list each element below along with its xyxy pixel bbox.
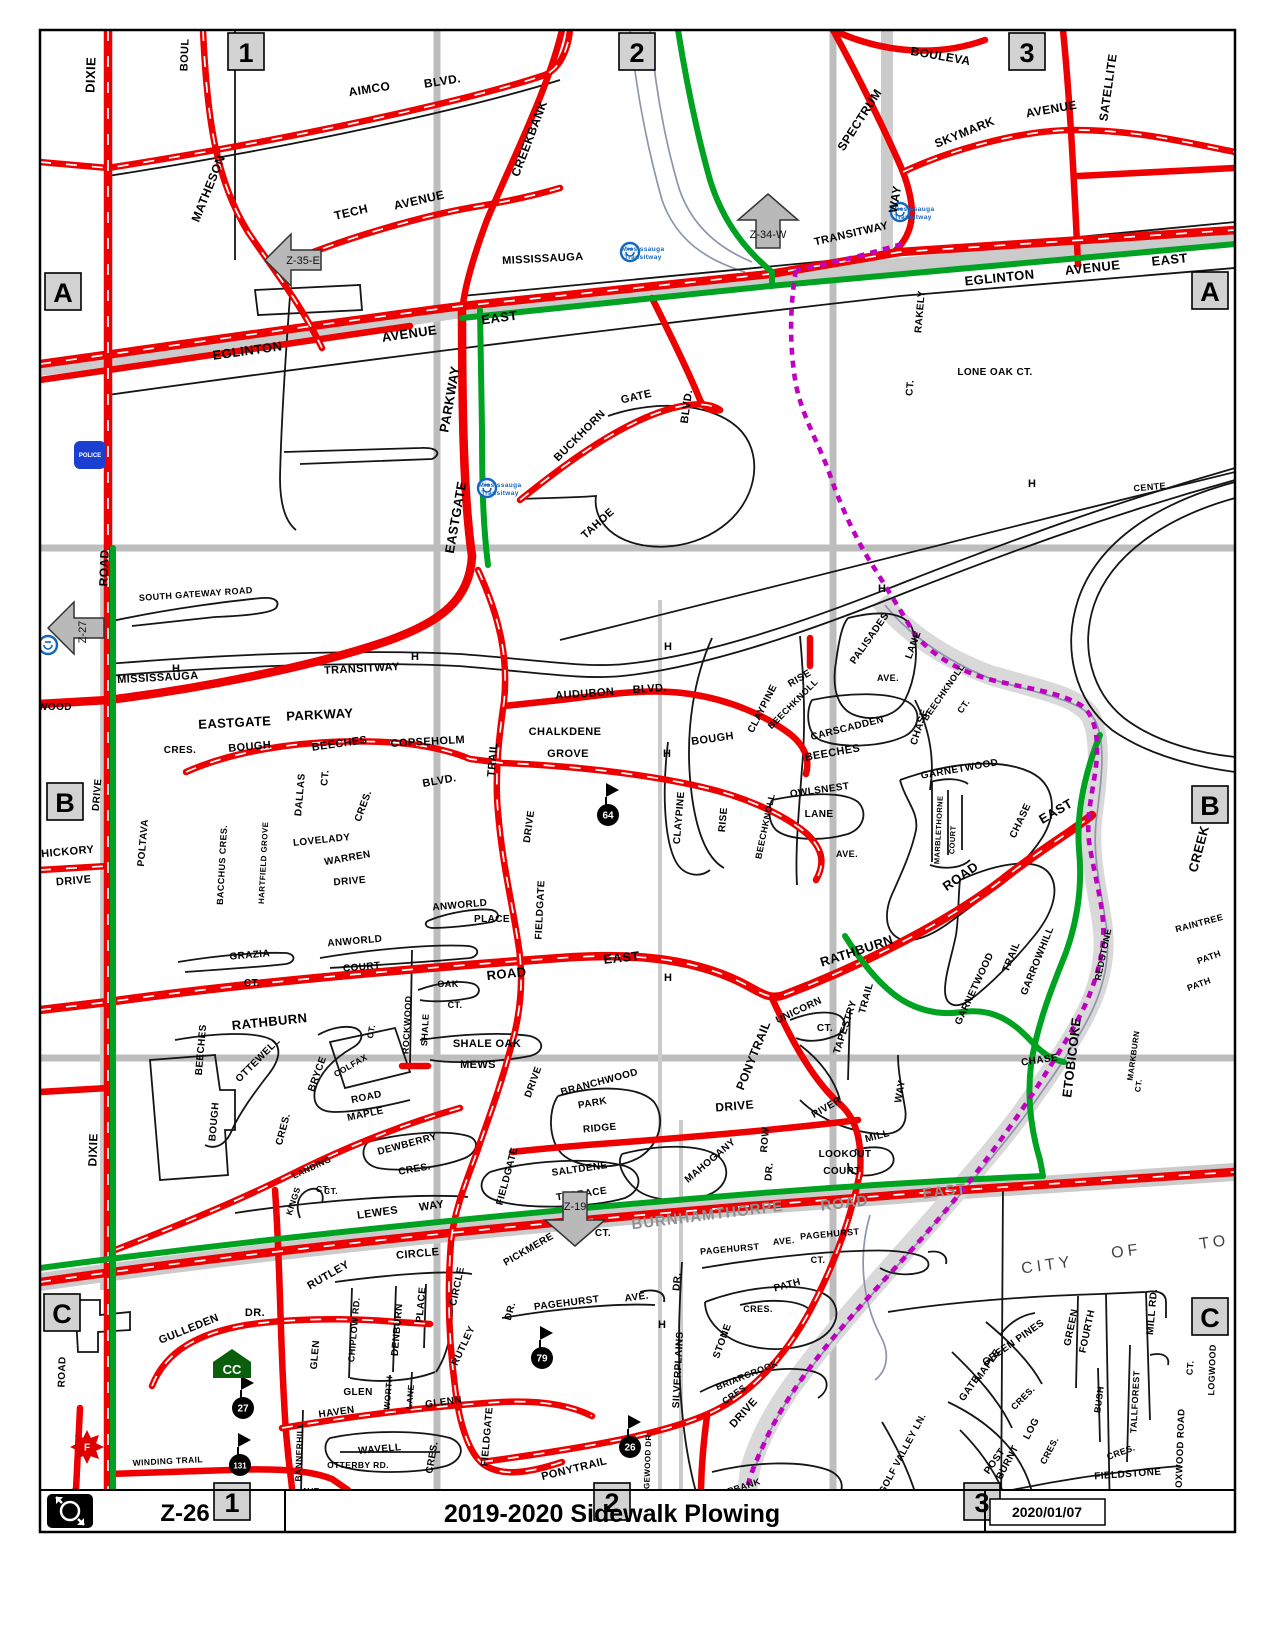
- zone-arrow-Z-34-W: Z-34-W: [738, 194, 798, 248]
- street-label: CT.: [324, 1186, 338, 1196]
- street-label: RUTLEY: [305, 1258, 351, 1292]
- street-label: CHALKDENE: [529, 726, 602, 738]
- street-label: CT.: [365, 1024, 377, 1039]
- street-label: DR.: [503, 1301, 518, 1322]
- street-label: DR.: [671, 1272, 684, 1291]
- roads-minor-segment: [665, 742, 710, 875]
- school-badge-131: 131: [229, 1433, 251, 1476]
- street-label: CRES.: [743, 1304, 773, 1314]
- street-label: RAKELY: [913, 290, 928, 333]
- street-label: CHASE: [909, 708, 931, 747]
- street-label: CHASE: [1008, 802, 1034, 840]
- svg-text:27: 27: [237, 1404, 249, 1415]
- street-label: AVE.: [624, 1291, 649, 1305]
- street-label: CT.: [904, 379, 916, 396]
- street-label: MILL: [864, 1128, 891, 1145]
- school-badge-64: 64: [597, 783, 619, 826]
- street-label: EAST: [1151, 250, 1189, 269]
- roads-minor-segment: [689, 638, 724, 868]
- street-label: WINDING TRAIL: [132, 1454, 203, 1468]
- street-label: CT.: [595, 1228, 611, 1239]
- street-label: WAY: [418, 1198, 445, 1213]
- street-label: DIXIE: [85, 1133, 100, 1167]
- svg-text:1: 1: [238, 38, 253, 68]
- svg-text:3: 3: [974, 1488, 989, 1518]
- map-content: MississaugaTransitwayMississaugaTransitw…: [38, 30, 1235, 1521]
- title-bar: Z-26 2019-2020 Sidewalk Plowing 2020/01/…: [47, 1490, 1105, 1532]
- svg-text:F: F: [84, 1443, 90, 1454]
- street-label: PLACE: [414, 1286, 428, 1323]
- roads-minor-segment: [150, 1055, 235, 1180]
- svg-text:A: A: [1200, 277, 1220, 307]
- roads-plowed-red-segment: [462, 306, 472, 556]
- street-label: GATE: [957, 1374, 982, 1404]
- street-label: TRAIL: [1001, 940, 1023, 973]
- street-label: BANNERHILL: [293, 1422, 305, 1482]
- street-label: DRIVE: [522, 810, 537, 844]
- street-label: CT.: [319, 769, 331, 786]
- street-label: GATE: [620, 388, 653, 407]
- street-label: CENTE: [1133, 481, 1166, 494]
- street-label: BOUGH: [690, 730, 734, 748]
- svg-text:Mississauga: Mississauga: [621, 246, 664, 253]
- street-label: RIVER: [810, 1095, 844, 1121]
- grid-marker-2: 2: [619, 33, 655, 70]
- roads-minor-segment: [928, 1252, 946, 1264]
- street-label: CARSCADDEN: [810, 714, 886, 743]
- street-label: BOUGH: [207, 1102, 221, 1142]
- street-label: MILL RD.: [1145, 1288, 1160, 1335]
- roads-minor-segment: [887, 764, 1052, 941]
- street-label: HARTFIELD GROVE: [257, 821, 270, 904]
- grid-marker-C: C: [44, 1294, 80, 1331]
- street-label: CRES.: [1009, 1384, 1037, 1412]
- map-title: 2019-2020 Sidewalk Plowing: [444, 1500, 780, 1528]
- street-label: CLAYPINE: [672, 791, 688, 845]
- svg-text:POLICE: POLICE: [79, 453, 101, 459]
- svg-text:Transitway: Transitway: [894, 214, 932, 221]
- street-label: CREEK: [1185, 824, 1212, 874]
- grid-marker-B: B: [47, 783, 83, 820]
- street-label: CT.: [811, 1255, 826, 1265]
- street-label: MAPLE: [346, 1105, 384, 1123]
- community-centre-icon: CC: [213, 1349, 251, 1378]
- street-label: MISSISSAUGA: [117, 670, 199, 686]
- street-label: POLTAVA: [136, 819, 151, 867]
- svg-text:C: C: [52, 1299, 72, 1329]
- street-label: ANWORLD: [327, 934, 383, 950]
- street-label: BEECHES: [311, 734, 368, 754]
- street-label: LANE: [404, 1384, 416, 1410]
- street-label: CT.: [817, 1023, 833, 1034]
- transitway-station-h-marker: H: [664, 972, 672, 984]
- street-label: CT.: [1184, 1360, 1195, 1376]
- street-label: PARK: [577, 1096, 608, 1112]
- street-label: GOLF VALLEY LN.: [877, 1412, 929, 1496]
- svg-text:Z-19: Z-19: [564, 1201, 587, 1213]
- street-label: WOOD: [38, 702, 72, 713]
- street-label: FIELDGATE: [533, 880, 547, 940]
- mississauga-transitway-icon: MississaugaTransitway: [621, 243, 665, 261]
- street-label: PATH: [1186, 975, 1213, 993]
- street-label: OF: [1110, 1241, 1142, 1262]
- roads-plowed-red-segment: [1078, 168, 1235, 176]
- street-label: RISE: [717, 807, 730, 833]
- street-label: CITY: [1020, 1253, 1074, 1277]
- zone-arrow-Z-35-E: Z-35-E: [265, 234, 321, 286]
- transitway-station-h-marker: H: [411, 651, 419, 663]
- street-label: BOUL: [178, 38, 191, 71]
- street-label: AVE.: [877, 673, 899, 683]
- map-date: 2020/01/07: [1012, 1504, 1082, 1520]
- street-label: BACCHUS CRES.: [215, 825, 229, 906]
- svg-text:79: 79: [536, 1354, 548, 1365]
- grid-marker-1: 1: [214, 1483, 250, 1520]
- street-label: CRES.: [164, 745, 197, 756]
- street-label: WAVELL: [358, 1442, 402, 1457]
- street-label: CT.: [955, 697, 972, 715]
- street-label: LOOKOUT: [819, 1149, 872, 1160]
- street-label: CHERRY: [912, 1490, 957, 1519]
- transitway-station-h-marker: H: [1028, 478, 1036, 490]
- police-station-icon: POLICE: [74, 441, 106, 469]
- street-label: CRES.: [353, 789, 374, 823]
- street-label: ROW: [759, 1126, 772, 1153]
- street-label: TRAIL: [857, 982, 876, 1015]
- street-label: EAST: [603, 948, 641, 967]
- street-label: SHALE OAK: [453, 1038, 521, 1050]
- multi-use-trail-purple-segment: [747, 270, 1103, 1492]
- svg-text:Transitway: Transitway: [624, 254, 662, 261]
- street-label: SHALE: [419, 1013, 431, 1046]
- school-badge-27: 27: [232, 1376, 254, 1419]
- street-label: CRES.: [274, 1112, 293, 1146]
- fire-station-icon: F: [70, 1430, 104, 1464]
- grid-marker-C: C: [1192, 1298, 1228, 1335]
- svg-text:Z-34-W: Z-34-W: [750, 229, 787, 241]
- street-label: BRANCHWOOD: [560, 1067, 640, 1098]
- street-label: MEWS: [460, 1059, 496, 1071]
- street-label: AUDUBON: [555, 686, 615, 702]
- street-label: RIDGEWOOD DR.: [642, 1432, 654, 1505]
- transitway-station-h-marker: H: [663, 748, 671, 760]
- street-label: WORTH: [382, 1375, 395, 1410]
- roads-minor-segment: [1106, 1294, 1110, 1520]
- roads-minor-segment: [284, 448, 437, 464]
- street-label: TO: [1198, 1232, 1230, 1253]
- street-label: DRIVE: [715, 1097, 755, 1114]
- mississauga-transitway-icon: [39, 636, 57, 654]
- street-label: AVE.: [836, 849, 858, 859]
- street-label: MATHESON: [189, 153, 229, 224]
- road-centerline-dash: [203, 30, 322, 348]
- school-badge-79: 79: [531, 1326, 553, 1369]
- street-label: ROAD: [56, 1356, 68, 1387]
- street-label: BEECHES: [194, 1024, 209, 1076]
- routes-green-segment: [480, 310, 488, 565]
- grid-marker-B: B: [1192, 786, 1228, 823]
- street-label: PATH: [1196, 948, 1223, 966]
- etobicoke-creek-segment: [754, 605, 1108, 1472]
- street-label: BLVD.: [632, 682, 667, 696]
- street-label: ROAD: [96, 549, 111, 586]
- street-label: AVE.: [772, 1235, 795, 1247]
- street-label: DALLAS: [293, 773, 308, 817]
- street-label: GROVE: [547, 748, 589, 760]
- svg-text:B: B: [1200, 791, 1220, 821]
- plow-logo-icon: [47, 1494, 93, 1528]
- street-label: GLEN: [343, 1387, 372, 1398]
- street-label: LANDING: [291, 1154, 333, 1181]
- roads-plowed-red-segment: [833, 30, 985, 51]
- street-label: RAINTREE: [1174, 912, 1224, 934]
- street-label: CIRCLE: [396, 1246, 440, 1262]
- street-label: MAHOGANY: [683, 1137, 738, 1186]
- street-label: BLVD.: [423, 71, 462, 91]
- roads-minor-segment: [1088, 498, 1235, 757]
- street-label: HICKORY: [41, 844, 95, 861]
- roads-minor-segment: [75, 1300, 130, 1352]
- street-label: FIELDGATE: [495, 1146, 521, 1206]
- street-label: PICKMERE: [502, 1231, 556, 1269]
- street-label: AIMCO: [348, 79, 392, 99]
- sidewalk-plowing-map-page: MississaugaTransitwayMississaugaTransitw…: [0, 0, 1275, 1650]
- street-label: TECH: [333, 201, 370, 222]
- transitway-station-h-marker: H: [664, 641, 672, 653]
- street-label: BOXWOOD ROAD: [1173, 1408, 1187, 1495]
- svg-text:2: 2: [629, 38, 644, 68]
- svg-text:Transitway: Transitway: [481, 490, 519, 497]
- grid-marker-A: A: [1192, 272, 1228, 309]
- street-label: LONE OAK CT.: [957, 367, 1032, 378]
- street-label: RATHBURN: [231, 1010, 308, 1033]
- street-label: OWLSNEST: [789, 781, 850, 800]
- street-label: EAST: [1036, 796, 1075, 827]
- street-label: LOVELADY: [292, 832, 350, 849]
- svg-text:131: 131: [233, 1462, 247, 1471]
- street-label: SILVERPLAINS: [671, 1331, 686, 1408]
- street-label: ROAD: [1107, 1492, 1139, 1505]
- street-label: BLVD.: [679, 389, 696, 425]
- street-label: OTTERBY RD.: [327, 1460, 389, 1470]
- street-label: LEWES: [356, 1204, 398, 1222]
- street-label: DR.: [245, 1307, 265, 1319]
- street-label: PLACE: [474, 914, 510, 925]
- street-label: DENBURN: [390, 1303, 406, 1357]
- street-label: WAY: [893, 1079, 908, 1104]
- street-label: CRES.: [398, 1161, 432, 1177]
- street-label: PONYTRAIL: [540, 1455, 608, 1483]
- street-label: KINGS: [284, 1186, 302, 1217]
- street-label: TALLFOREST: [1128, 1370, 1141, 1433]
- roads-plowed-red-segment: [40, 1088, 108, 1092]
- street-label: BUSH: [1092, 1385, 1106, 1413]
- grid-marker-1: 1: [228, 33, 264, 70]
- roads-minor-segment: [255, 285, 362, 315]
- street-label: PATH: [773, 1277, 802, 1295]
- street-label: DIXIE: [82, 57, 98, 93]
- street-label: OAK: [437, 979, 458, 989]
- street-label: CREEKBANK: [508, 99, 550, 179]
- street-label: PAGEHURST: [533, 1294, 600, 1313]
- street-label: CT.: [244, 978, 260, 989]
- roads-minor-segment: [108, 468, 1235, 665]
- svg-text:1: 1: [224, 1488, 239, 1518]
- svg-text:Mississauga: Mississauga: [478, 482, 521, 489]
- street-label: CT.: [448, 1000, 463, 1010]
- svg-text:CC: CC: [223, 1362, 242, 1377]
- street-label: PAGEHURST: [700, 1241, 760, 1256]
- svg-text:3: 3: [1019, 38, 1034, 68]
- street-label: CRES.: [1038, 1435, 1061, 1466]
- street-label: TRANSITWAY: [813, 220, 890, 249]
- street-label: CRES.: [1105, 1442, 1136, 1461]
- street-label: WARREN: [324, 849, 372, 868]
- zone-code: Z-26: [160, 1500, 209, 1527]
- svg-text:B: B: [55, 788, 75, 818]
- map-canvas: MississaugaTransitwayMississaugaTransitw…: [0, 0, 1275, 1650]
- street-label: COPSEHOLM: [390, 734, 465, 750]
- street-label: ROAD: [940, 859, 981, 894]
- street-label: MISSISSAUGA: [502, 251, 584, 267]
- street-label: SATELLITE: [1096, 53, 1119, 122]
- street-label: CT.: [1133, 1078, 1144, 1092]
- street-label: CHIPLOW RD.: [346, 1297, 362, 1363]
- street-label: COURT: [823, 1166, 861, 1177]
- street-label: LOGWOOD: [1206, 1344, 1218, 1396]
- street-label: PARKWAY: [286, 705, 354, 723]
- svg-text:C: C: [1200, 1303, 1220, 1333]
- street-label: MARBLETHORNE: [932, 795, 945, 864]
- street-label: FOURTH: [1078, 1309, 1098, 1354]
- street-label: DR.: [763, 1162, 776, 1181]
- street-label: TRANSITWAY: [324, 661, 400, 677]
- svg-text:26: 26: [624, 1443, 636, 1454]
- street-label: DRIVE: [55, 873, 92, 888]
- street-label: ROAD: [350, 1089, 383, 1106]
- roads-plowed-red-segment: [1063, 30, 1078, 264]
- svg-text:Z-35-E: Z-35-E: [286, 255, 320, 267]
- grid-marker-A: A: [45, 273, 81, 310]
- street-label: GLEN: [309, 1340, 323, 1370]
- grid-marker-3: 3: [1009, 33, 1045, 70]
- svg-text:A: A: [53, 278, 73, 308]
- street-label: FIELDSTONE: [1094, 1467, 1162, 1483]
- transitway-station-h-marker: H: [658, 1319, 666, 1331]
- street-label: DRIVE: [523, 1065, 544, 1099]
- street-label: RIDGE: [583, 1122, 618, 1136]
- mississauga-transitway-icon: MississaugaTransitway: [478, 479, 522, 497]
- roads-plowed-red-segment: [203, 30, 322, 348]
- street-label: ROCKWOOD: [400, 995, 413, 1054]
- street-label: GRAZIA: [229, 948, 271, 963]
- street-label: PALISADES: [848, 611, 891, 667]
- svg-text:Z-27: Z-27: [77, 621, 89, 644]
- street-label: STONE: [711, 1322, 734, 1360]
- street-label: BOUGH: [228, 739, 272, 755]
- street-label: LANE: [805, 809, 834, 820]
- street-label: LOG: [1022, 1416, 1042, 1441]
- roads-minor-segment: [108, 598, 277, 626]
- street-label: EASTGATE: [198, 713, 272, 732]
- transitway-station-h-marker: H: [878, 583, 886, 595]
- street-label: DRIVE: [333, 875, 366, 889]
- svg-text:64: 64: [602, 811, 614, 822]
- street-label: COURT: [947, 825, 957, 854]
